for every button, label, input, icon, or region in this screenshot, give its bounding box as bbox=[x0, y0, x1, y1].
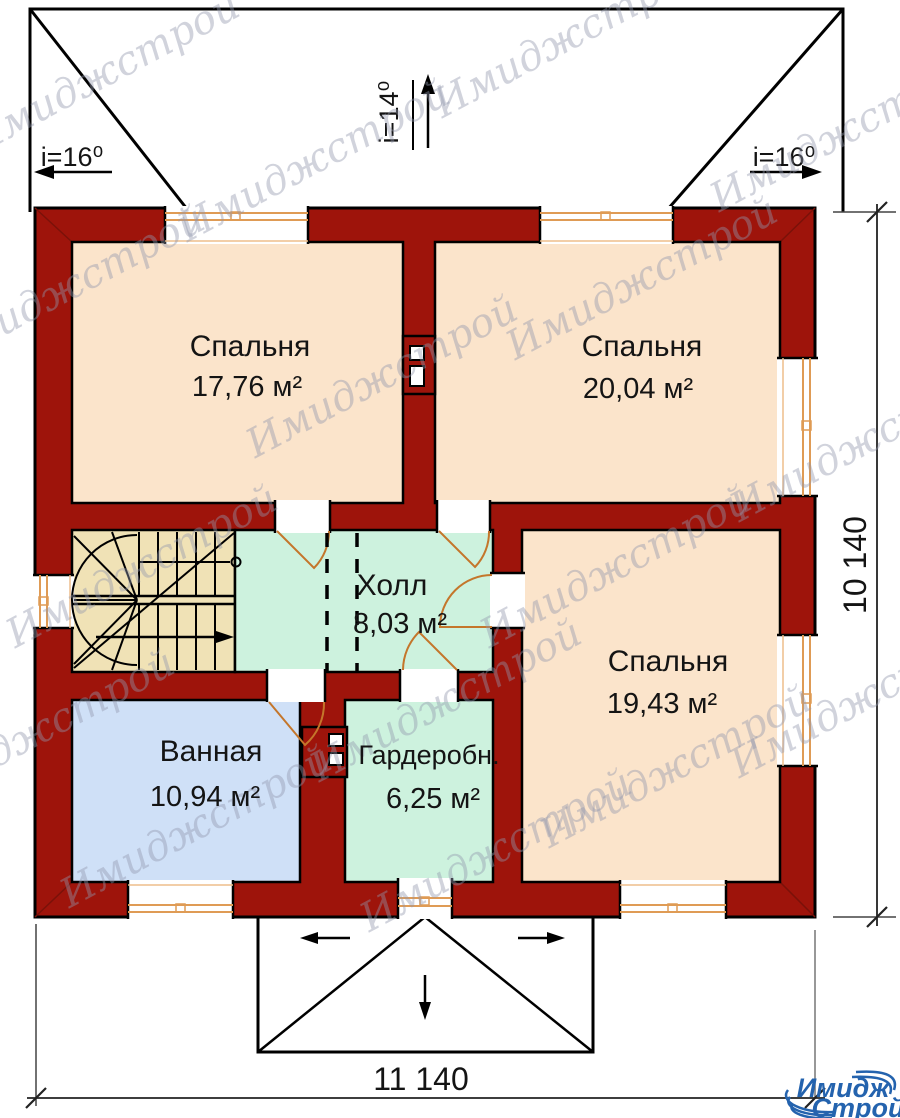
floor-plan-drawing: i=16⁰ i=14⁰ i=16⁰ 10 140 11 140 bbox=[0, 0, 900, 1118]
logo-text-bottom: Строй bbox=[812, 1093, 900, 1118]
bedroom-2-name: Спальня bbox=[582, 330, 703, 363]
window-bottom-bathroom bbox=[128, 880, 233, 919]
watermark-text: Имиджстрой bbox=[425, 0, 713, 128]
window-bottom-bedroom-3 bbox=[620, 880, 726, 919]
floor-plan-page: i=16⁰ i=14⁰ i=16⁰ 10 140 11 140 bbox=[0, 0, 900, 1118]
wardrobe-area: 6,25 м² bbox=[386, 783, 480, 815]
bedroom-2-area: 20,04 м² bbox=[583, 373, 694, 405]
dimension-right: 10 140 bbox=[833, 202, 896, 927]
bathroom-area: 10,94 м² bbox=[150, 781, 261, 813]
hall-area: 8,03 м² bbox=[353, 608, 447, 640]
watermark-text: Имиджстрой bbox=[0, 0, 247, 165]
dimension-width-value: 11 140 bbox=[373, 1061, 469, 1097]
watermark-text: Имиджстрой bbox=[702, 40, 900, 222]
bathroom-name: Ванная bbox=[160, 735, 263, 768]
wardrobe-name: Гардеробн. bbox=[358, 740, 499, 770]
window-top-bedroom-2 bbox=[540, 206, 673, 244]
bedroom-1-name: Спальня bbox=[190, 330, 311, 363]
porch-roof bbox=[258, 917, 593, 1052]
company-logo: Имидж Строй bbox=[786, 1072, 900, 1118]
bedroom-3-area: 19,43 м² bbox=[607, 688, 718, 720]
bedroom-1-area: 17,76 м² bbox=[192, 371, 303, 403]
dimension-depth-value: 10 140 bbox=[837, 516, 873, 614]
bedroom-3-name: Спальня bbox=[608, 645, 729, 678]
hall-name: Холл bbox=[357, 569, 428, 602]
